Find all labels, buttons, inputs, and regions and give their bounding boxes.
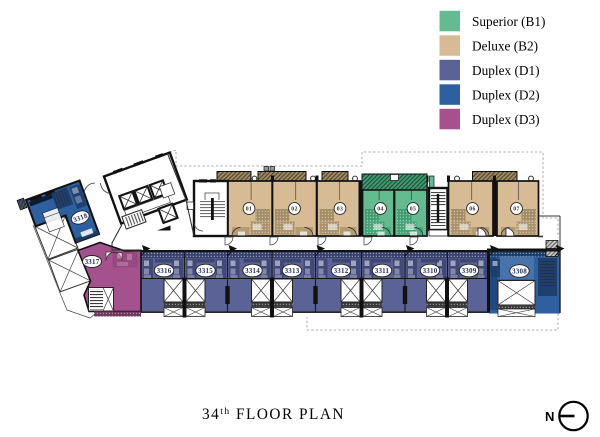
svg-text:01: 01 bbox=[246, 207, 253, 213]
svg-text:Superior (B1): Superior (B1) bbox=[472, 14, 546, 29]
svg-text:3314: 3314 bbox=[245, 267, 260, 275]
svg-text:07: 07 bbox=[513, 207, 520, 213]
svg-text:3316: 3316 bbox=[157, 267, 172, 275]
svg-text:02: 02 bbox=[291, 207, 298, 213]
svg-text:04: 04 bbox=[377, 207, 384, 213]
svg-text:03: 03 bbox=[337, 207, 344, 213]
svg-text:Duplex (D1): Duplex (D1) bbox=[472, 63, 540, 78]
svg-text:N: N bbox=[545, 409, 554, 424]
svg-text:3311: 3311 bbox=[375, 267, 390, 275]
svg-text:3315: 3315 bbox=[198, 267, 213, 275]
svg-text:3309: 3309 bbox=[462, 267, 477, 275]
svg-text:3317: 3317 bbox=[85, 258, 100, 266]
svg-text:3313: 3313 bbox=[285, 267, 300, 275]
svg-text:05: 05 bbox=[410, 207, 417, 213]
svg-text:3310: 3310 bbox=[423, 267, 438, 275]
svg-text:3308: 3308 bbox=[512, 268, 527, 276]
svg-text:Duplex (D2): Duplex (D2) bbox=[472, 87, 540, 102]
svg-text:06: 06 bbox=[469, 207, 476, 213]
svg-text:3312: 3312 bbox=[334, 267, 349, 275]
svg-text:Deluxe (B2): Deluxe (B2) bbox=[472, 38, 538, 53]
svg-text:Duplex (D3): Duplex (D3) bbox=[472, 112, 540, 127]
